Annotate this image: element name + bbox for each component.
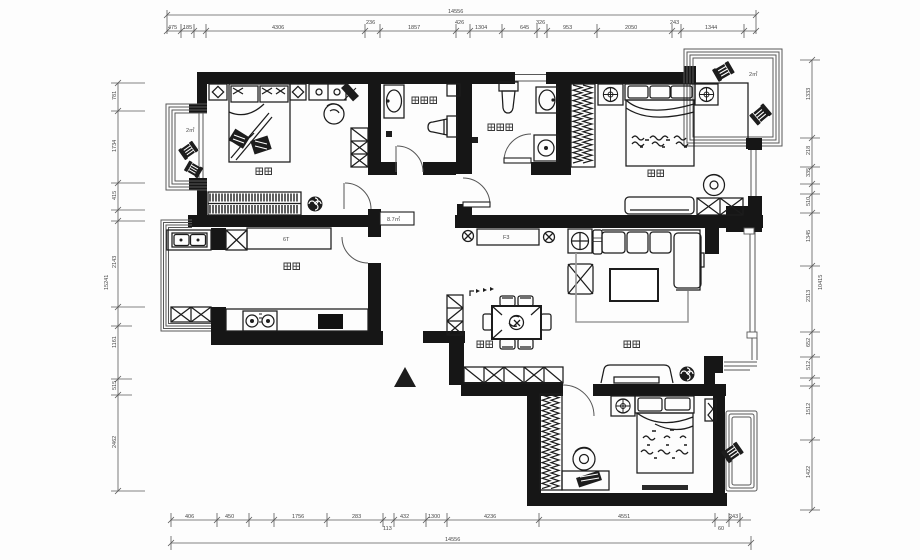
svg-text:113: 113 (383, 526, 392, 532)
svg-text:652: 652 (806, 338, 812, 347)
svg-text:2050: 2050 (625, 25, 637, 31)
svg-text:2462: 2462 (112, 436, 118, 448)
svg-text:2㎡: 2㎡ (186, 126, 195, 134)
svg-text:415: 415 (112, 191, 118, 200)
svg-text:450: 450 (225, 514, 234, 520)
svg-text:4551: 4551 (618, 514, 630, 520)
svg-text:218: 218 (806, 146, 812, 155)
svg-text:1512: 1512 (806, 403, 812, 415)
svg-text:185: 185 (183, 25, 192, 31)
svg-text:14556: 14556 (448, 9, 463, 15)
svg-text:2143: 2143 (112, 256, 118, 268)
svg-text:F3: F3 (503, 235, 509, 241)
svg-text:236: 236 (366, 20, 375, 26)
svg-text:1300: 1300 (428, 514, 440, 520)
svg-text:953: 953 (563, 25, 572, 31)
svg-text:326: 326 (536, 20, 545, 26)
svg-text:645: 645 (520, 25, 529, 31)
svg-text:1422: 1422 (806, 466, 812, 478)
svg-text:1161: 1161 (112, 336, 118, 348)
svg-text:15241: 15241 (104, 275, 110, 290)
svg-text:60: 60 (718, 526, 724, 532)
svg-text:283: 283 (352, 514, 361, 520)
svg-text:14556: 14556 (445, 537, 460, 543)
svg-text:4236: 4236 (484, 514, 496, 520)
svg-text:1304: 1304 (475, 25, 487, 31)
svg-text:406: 406 (185, 514, 194, 520)
svg-text:781: 781 (112, 91, 118, 100)
svg-text:243: 243 (670, 20, 679, 26)
svg-text:335: 335 (806, 168, 812, 177)
svg-text:2㎡: 2㎡ (749, 70, 758, 78)
svg-text:515: 515 (112, 381, 118, 390)
svg-text:426: 426 (455, 20, 464, 26)
svg-text:432: 432 (400, 514, 409, 520)
svg-text:8.7㎡: 8.7㎡ (387, 215, 401, 223)
svg-text:1345: 1345 (806, 230, 812, 242)
svg-text:2313: 2313 (806, 290, 812, 302)
svg-text:1344: 1344 (705, 25, 717, 31)
svg-text:1756: 1756 (292, 514, 304, 520)
svg-text:10415: 10415 (818, 275, 824, 290)
svg-text:512: 512 (806, 361, 812, 370)
svg-text:243: 243 (729, 514, 738, 520)
svg-text:1333: 1333 (806, 88, 812, 100)
svg-text:1857: 1857 (408, 25, 420, 31)
svg-text:6T: 6T (283, 237, 290, 243)
svg-text:510: 510 (806, 197, 812, 206)
svg-text:475: 475 (168, 25, 177, 31)
svg-text:4306: 4306 (272, 25, 284, 31)
svg-text:1734: 1734 (112, 140, 118, 152)
